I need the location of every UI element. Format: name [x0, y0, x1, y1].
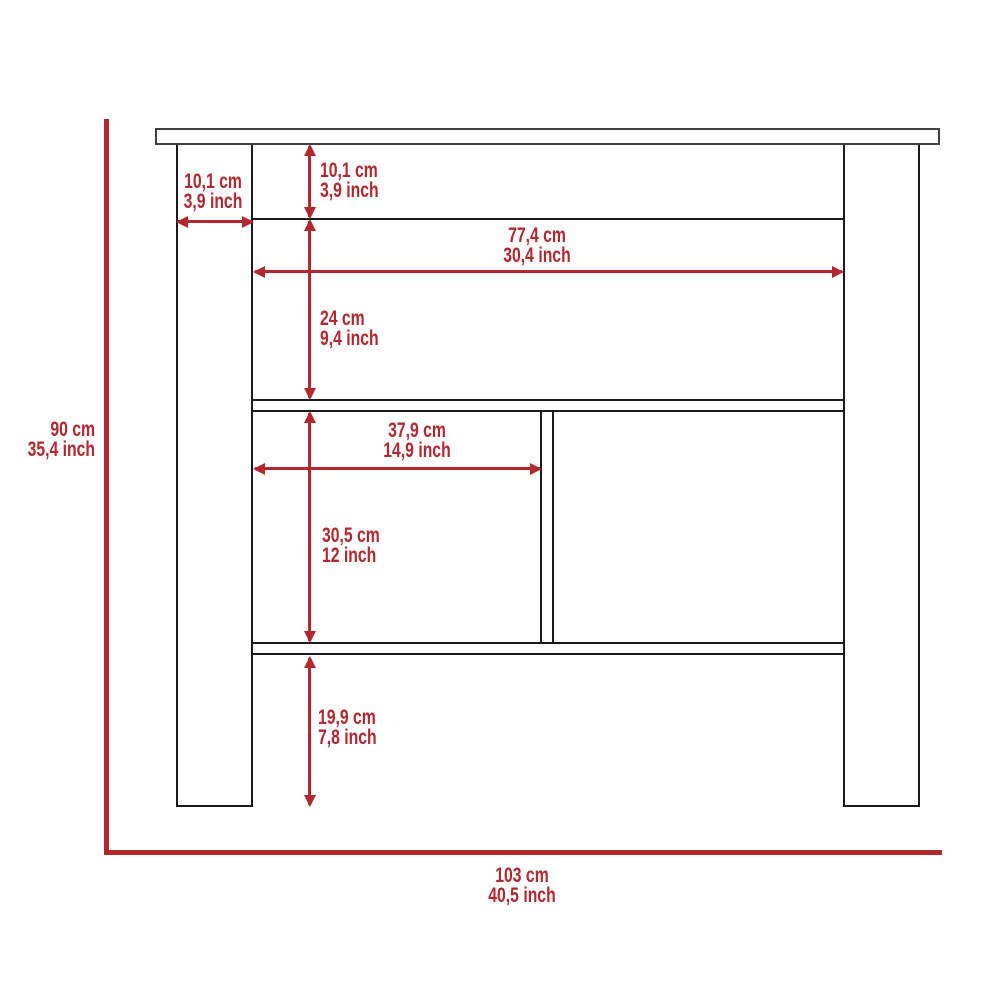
dim-value-cm: 103 cm [477, 866, 567, 886]
dim-value-inch: 40,5 inch [477, 886, 567, 906]
dim-value-cm: 24 cm [320, 309, 410, 329]
dim-value-inch: 14,9 inch [372, 441, 462, 461]
dim-label-bottom-clearance: 19,9 cm 7,8 inch [318, 708, 408, 748]
dim-arrow-leg-width [178, 220, 252, 223]
overall-width-extent-line [104, 850, 942, 855]
dim-label-top-rail-height: 10,1 cm 3,9 inch [320, 161, 410, 201]
dim-label-inner-width: 77,4 cm 30,4 inch [492, 226, 582, 266]
upper-shelf-bottom-line [253, 410, 843, 412]
right-leg [843, 145, 920, 807]
dim-value-inch: 30,4 inch [492, 246, 582, 266]
dim-arrow-inner-width [255, 270, 842, 273]
dim-value-cm: 19,9 cm [318, 708, 408, 728]
dim-value-cm: 37,9 cm [372, 421, 462, 441]
center-divider-left-line [540, 412, 542, 643]
dim-arrow-lower-compartment-height [308, 413, 311, 641]
dim-value-inch: 12 inch [322, 546, 412, 566]
dim-arrow-left-compartment-width [255, 467, 540, 470]
dim-label-overall-width: 103 cm 40,5 inch [477, 866, 567, 906]
dim-value-cm: 10,1 cm [168, 172, 258, 192]
dim-value-inch: 35,4 inch [5, 440, 95, 460]
dim-value-cm: 10,1 cm [320, 161, 410, 181]
furniture-dimension-diagram: 10,1 cm 3,9 inch 10,1 cm 3,9 inch 77,4 c… [0, 0, 1000, 1000]
upper-shelf-top-line [253, 399, 843, 401]
dim-value-inch: 3,9 inch [320, 181, 410, 201]
dim-arrow-bottom-clearance [308, 658, 311, 805]
dim-label-overall-height: 90 cm 35,4 inch [5, 420, 95, 460]
left-leg [176, 145, 253, 807]
tabletop [155, 128, 940, 145]
dim-value-inch: 3,9 inch [168, 192, 258, 212]
center-divider-right-line [552, 412, 554, 643]
dim-arrow-top-rail-height [308, 146, 311, 217]
dim-value-cm: 30,5 cm [322, 526, 412, 546]
dim-label-lower-compartment-height: 30,5 cm 12 inch [322, 526, 412, 566]
overall-height-extent-line [104, 119, 109, 855]
dim-value-inch: 9,4 inch [320, 329, 410, 349]
dim-value-cm: 77,4 cm [492, 226, 582, 246]
dim-label-left-compartment-width: 37,9 cm 14,9 inch [372, 421, 462, 461]
dim-value-inch: 7,8 inch [318, 728, 408, 748]
dim-label-leg-width: 10,1 cm 3,9 inch [168, 172, 258, 212]
dim-label-upper-compartment-height: 24 cm 9,4 inch [320, 309, 410, 349]
lower-shelf-bottom-line [253, 653, 843, 655]
apron-line [253, 218, 843, 220]
dim-value-cm: 90 cm [5, 420, 95, 440]
lower-shelf-top-line [253, 642, 843, 644]
dim-arrow-upper-compartment-height [308, 221, 311, 398]
